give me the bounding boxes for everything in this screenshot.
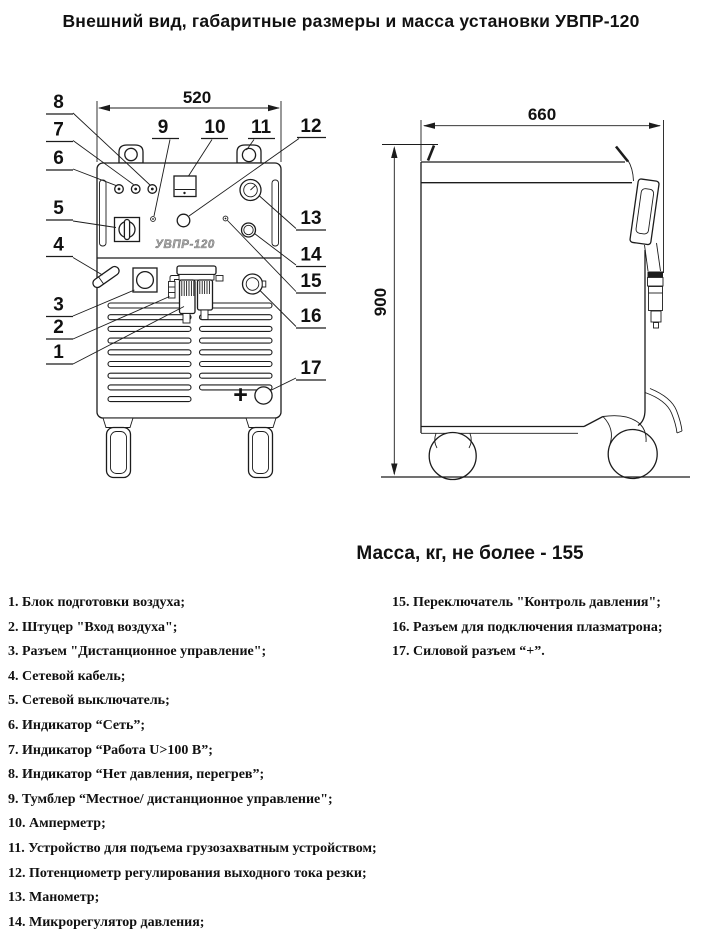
- legend-item-number: 6.: [8, 718, 19, 733]
- handle-right: [272, 180, 279, 246]
- legend-item-number: 3.: [8, 644, 19, 659]
- legend-item-label: Штуцер "Вход воздуха";: [22, 620, 177, 635]
- toggle-switch: [151, 217, 156, 222]
- pressure-microregulator: [242, 223, 256, 237]
- legend-item-5: 5. Сетевой выключатель;: [8, 689, 377, 714]
- legend-item-label: Тумблер “Местное/ дистанционное управлен…: [22, 792, 333, 807]
- legend-item-number: 1.: [8, 595, 19, 610]
- power-connector-plus: [255, 387, 272, 404]
- legend-item-number: 12.: [8, 866, 26, 881]
- callout-label-7: 7: [53, 120, 64, 141]
- legend-item-10: 10. Амперметр;: [8, 812, 377, 837]
- legend-left-column: 1. Блок подготовки воздуха; 2. Штуцер "В…: [8, 591, 377, 935]
- cabinet-side-body: [421, 146, 645, 434]
- legend-item-number: 15.: [392, 595, 410, 610]
- output-cable: [645, 389, 682, 434]
- callout-label-8: 8: [53, 92, 64, 113]
- caster-front-right: [246, 418, 276, 478]
- legend-item-8: 8. Индикатор “Нет давления, перегрев”;: [8, 763, 377, 788]
- callout-label-6: 6: [53, 148, 64, 169]
- pressure-control-switch: [223, 216, 228, 221]
- lifting-eye-right: [237, 145, 261, 163]
- legend-item-label: Манометр;: [29, 890, 99, 905]
- torch-holder: [630, 179, 660, 245]
- legend-item-label: Индикатор “Работа U>100 В”;: [22, 743, 213, 758]
- legend-item-17: 17. Силовой разъем “+”.: [392, 640, 663, 665]
- legend-item-9: 9. Тумблер “Местное/ дистанционное управ…: [8, 788, 377, 813]
- legend-item-12: 12. Потенциометр регулирования выходного…: [8, 862, 377, 887]
- callout-label-2: 2: [53, 317, 64, 338]
- legend-item-label: Разъем "Дистанционное управление";: [22, 644, 266, 659]
- callout-label-17: 17: [300, 358, 321, 379]
- callout-label-16: 16: [300, 306, 321, 327]
- callout-label-10: 10: [204, 117, 225, 138]
- legend-item-number: 17.: [392, 644, 410, 659]
- legend-item-number: 11.: [8, 841, 25, 856]
- legend-item-label: Потенциометр регулирования выходного ток…: [29, 866, 367, 881]
- legend-item-label: Амперметр;: [29, 816, 106, 831]
- lifting-eye-left: [119, 145, 143, 163]
- legend-item-number: 9.: [8, 792, 19, 807]
- caster-side-right: [603, 416, 657, 479]
- legend-item-number: 7.: [8, 743, 19, 758]
- legend-item-number: 13.: [8, 890, 26, 905]
- callout-label-12: 12: [300, 116, 321, 137]
- legend-item-13: 13. Манометр;: [8, 886, 377, 911]
- air-inlet-fitting: [169, 282, 176, 299]
- legend-item-label: Индикатор “Сеть”;: [22, 718, 145, 733]
- mass-note: Масса, кг, не более - 155: [290, 543, 650, 565]
- legend-item-4: 4. Сетевой кабель;: [8, 665, 377, 690]
- legend-item-label: Блок подготовки воздуха;: [22, 595, 185, 610]
- front-view-drawing: 520: [91, 88, 281, 478]
- side-view-drawing: 660 900: [371, 105, 690, 480]
- callout-label-14: 14: [300, 245, 322, 266]
- legend-item-16: 16. Разъем для подключения плазматрона;: [392, 616, 663, 641]
- plasmatron-torch: [645, 243, 664, 328]
- legend-item-label: Индикатор “Нет давления, перегрев”;: [22, 767, 264, 782]
- legend-item-number: 5.: [8, 693, 19, 708]
- brand-label: УВПР-120: [155, 239, 215, 251]
- potentiometer-knob: [177, 214, 190, 227]
- callout-label-13: 13: [300, 208, 321, 229]
- ammeter: [174, 176, 196, 197]
- callout-label-9: 9: [158, 117, 169, 138]
- legend-right-column: 15. Переключатель "Контроль давления"; 1…: [392, 591, 663, 665]
- callout-4: 4: [46, 235, 103, 276]
- legend-item-number: 14.: [8, 915, 26, 930]
- legend-item-number: 16.: [392, 620, 410, 635]
- caster-side-left: [429, 433, 476, 480]
- side-depth-dimension: 660: [421, 105, 664, 273]
- legend-item-number: 10.: [8, 816, 26, 831]
- callout-label-1: 1: [53, 342, 64, 363]
- plus-sign: +: [233, 381, 248, 409]
- legend-item-number: 2.: [8, 620, 19, 635]
- legend-item-15: 15. Переключатель "Контроль давления";: [392, 591, 663, 616]
- legend-item-number: 8.: [8, 767, 19, 782]
- caster-front-left: [103, 418, 133, 478]
- legend-item-label: Устройство для подъема грузозахватным ус…: [28, 841, 376, 856]
- manometer: [240, 180, 261, 201]
- network-switch: [115, 218, 140, 242]
- lifting-eye-side-left: [428, 146, 434, 161]
- side-depth-dimension-label: 660: [528, 105, 556, 124]
- legend-item-3: 3. Разъем "Дистанционное управление";: [8, 640, 377, 665]
- remote-control-connector: [133, 268, 157, 292]
- callout-label-15: 15: [300, 271, 322, 292]
- legend-item-2: 2. Штуцер "Вход воздуха";: [8, 616, 377, 641]
- legend-item-label: Микрорегулятор давления;: [29, 915, 204, 930]
- legend-item-label: Разъем для подключения плазматрона;: [413, 620, 663, 635]
- legend-item-number: 4.: [8, 669, 19, 684]
- legend-item-label: Сетевой кабель;: [22, 669, 125, 684]
- legend-item-6: 6. Индикатор “Сеть”;: [8, 714, 377, 739]
- lifting-eye-side-right: [616, 147, 628, 162]
- legend-item-label: Силовой разъем “+”.: [413, 644, 545, 659]
- document-page: Внешний вид, габаритные размеры и масса …: [0, 0, 702, 937]
- callout-label-4: 4: [53, 235, 64, 256]
- callout-label-5: 5: [53, 198, 64, 219]
- callout-label-11: 11: [251, 117, 272, 138]
- handle-left: [100, 180, 107, 246]
- legend-item-1: 1. Блок подготовки воздуха;: [8, 591, 377, 616]
- legend-item-7: 7. Индикатор “Работа U>100 В”;: [8, 739, 377, 764]
- side-height-dimension-label: 900: [371, 288, 390, 316]
- legend-item-label: Сетевой выключатель;: [22, 693, 170, 708]
- callout-label-3: 3: [53, 295, 64, 316]
- front-width-dimension-label: 520: [183, 88, 211, 107]
- legend-item-11: 11. Устройство для подъема грузозахватны…: [8, 837, 377, 862]
- legend-item-label: Переключатель "Контроль давления";: [413, 595, 661, 610]
- legend-item-14: 14. Микрорегулятор давления;: [8, 911, 377, 936]
